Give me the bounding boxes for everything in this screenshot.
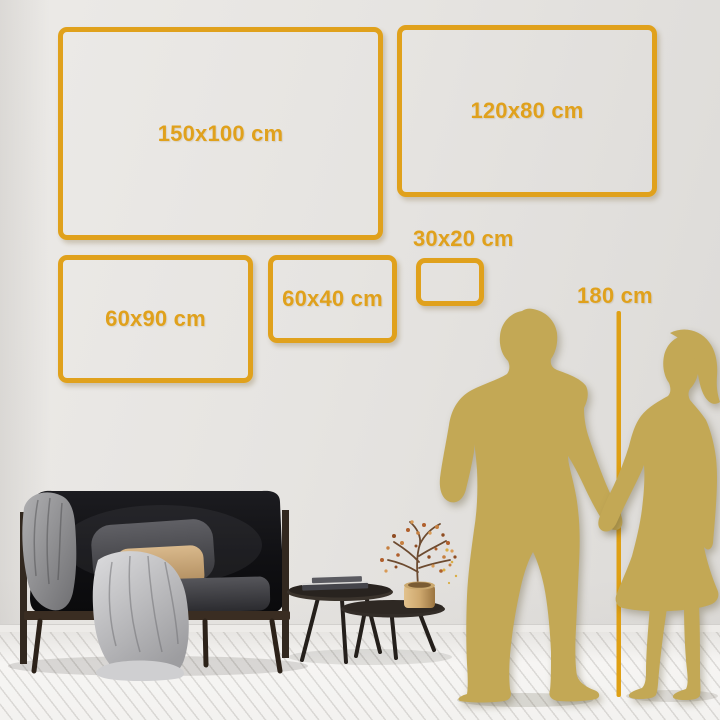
plant [380, 520, 457, 608]
size-frame-30x20 [416, 258, 484, 306]
seat-cushion [138, 576, 271, 613]
gold-vase [404, 585, 435, 608]
size-frame-150x100: 150x100 cm [58, 27, 383, 240]
plant-blossoms [380, 520, 457, 573]
gray-blanket [22, 492, 76, 610]
gray-pillow [90, 518, 216, 588]
wood-floor [0, 632, 720, 720]
sofa-wood-rail [24, 611, 290, 620]
size-frame-120x80: 120x80 cm [397, 25, 657, 197]
beige-pillow [115, 545, 205, 593]
size-frame-60x90: 60x90 cm [58, 255, 253, 383]
blanket-folds [34, 498, 62, 584]
size-label-30x20: 30x20 cm [413, 226, 514, 252]
gold-specks [443, 548, 458, 584]
books [302, 574, 368, 591]
size-label-60x90: 60x90 cm [105, 306, 206, 332]
woman-hair [670, 330, 720, 404]
size-label-60x40: 60x40 cm [282, 286, 383, 312]
size-comparison-graphic: 150x100 cm 120x80 cm 60x90 cm 60x40 cm 3… [0, 0, 720, 720]
plant-stems [388, 522, 450, 586]
size-label-150x100: 150x100 cm [158, 121, 284, 147]
woman-body [598, 336, 718, 611]
size-label-120x80: 120x80 cm [470, 98, 583, 124]
height-ruler-label: 180 cm [577, 283, 653, 309]
size-frame-60x40: 60x40 cm [268, 255, 397, 343]
